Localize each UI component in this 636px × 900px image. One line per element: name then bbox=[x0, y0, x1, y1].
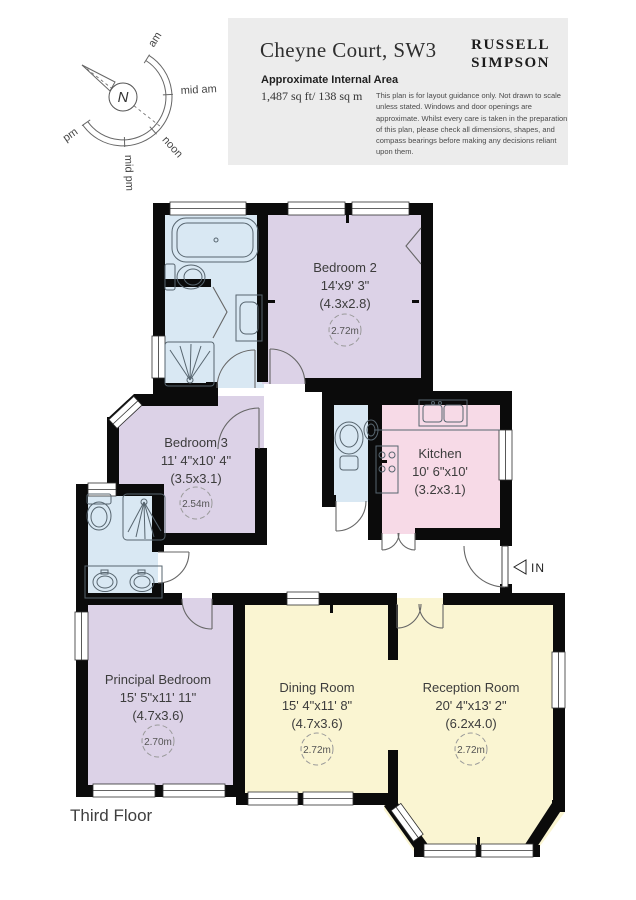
entrance-label: IN bbox=[531, 561, 545, 575]
room-dims-imperial: 10' 6"x10' bbox=[412, 464, 468, 479]
room-dims-imperial: 20' 4"x13' 2" bbox=[435, 698, 507, 713]
door-swing bbox=[336, 501, 366, 531]
window bbox=[288, 202, 345, 215]
floorplan-page: Cheyne Court, SW3 Approximate Internal A… bbox=[0, 0, 636, 900]
room-dims-metric: (3.5x3.1) bbox=[170, 471, 221, 486]
window bbox=[170, 202, 246, 215]
room-dims-imperial: 14'x9' 3" bbox=[321, 278, 370, 293]
room-dims-imperial: 15' 5"x11' 11" bbox=[120, 690, 197, 705]
floor-label: Third Floor bbox=[70, 806, 152, 826]
room-name: Kitchen bbox=[418, 446, 461, 461]
room-name: Reception Room bbox=[423, 680, 520, 695]
room-dims-metric: (4.7x3.6) bbox=[132, 708, 183, 723]
ceiling-height: 2.72m bbox=[303, 745, 331, 756]
ceiling-height: 2.70m bbox=[144, 737, 172, 748]
wc-area bbox=[327, 398, 375, 502]
window bbox=[499, 430, 512, 480]
room-dims-metric: (4.3x2.8) bbox=[319, 296, 370, 311]
entrance-marker: IN bbox=[514, 560, 545, 575]
window bbox=[352, 202, 409, 215]
window bbox=[248, 792, 298, 805]
room-name: Bedroom 3 bbox=[164, 435, 228, 450]
room-dims-imperial: 15' 4"x11' 8" bbox=[282, 698, 353, 713]
window bbox=[75, 612, 88, 660]
double-door-swing bbox=[382, 533, 415, 550]
internal-window bbox=[287, 592, 319, 605]
window bbox=[93, 784, 155, 797]
room-name: Principal Bedroom bbox=[105, 672, 211, 687]
ceiling-height: 2.72m bbox=[457, 745, 485, 756]
window bbox=[552, 652, 565, 708]
entrance-door-swing bbox=[464, 546, 508, 587]
window bbox=[424, 844, 476, 857]
ceiling-height: 2.72m bbox=[331, 326, 359, 337]
window bbox=[163, 784, 225, 797]
room-name: Dining Room bbox=[279, 680, 354, 695]
room-dims-metric: (6.2x4.0) bbox=[445, 716, 496, 731]
door-swing bbox=[158, 552, 189, 583]
room-dims-metric: (3.2x3.1) bbox=[414, 482, 465, 497]
room-dims-imperial: 11' 4"x10' 4" bbox=[161, 453, 232, 468]
floor-plan: IN Bedroom 2 14'x9' 3" (4.3x2.8) 2.72m B… bbox=[0, 0, 636, 900]
entrance-arrow-icon bbox=[514, 560, 526, 574]
room-dims-metric: (4.7x3.6) bbox=[291, 716, 342, 731]
room-name: Bedroom 2 bbox=[313, 260, 377, 275]
room-label-kitchen: Kitchen 10' 6"x10' (3.2x3.1) bbox=[412, 446, 468, 497]
ceiling-height: 2.54m bbox=[182, 499, 210, 510]
window bbox=[481, 844, 533, 857]
window bbox=[152, 336, 165, 378]
window bbox=[303, 792, 353, 805]
bathroom-area bbox=[158, 208, 264, 388]
